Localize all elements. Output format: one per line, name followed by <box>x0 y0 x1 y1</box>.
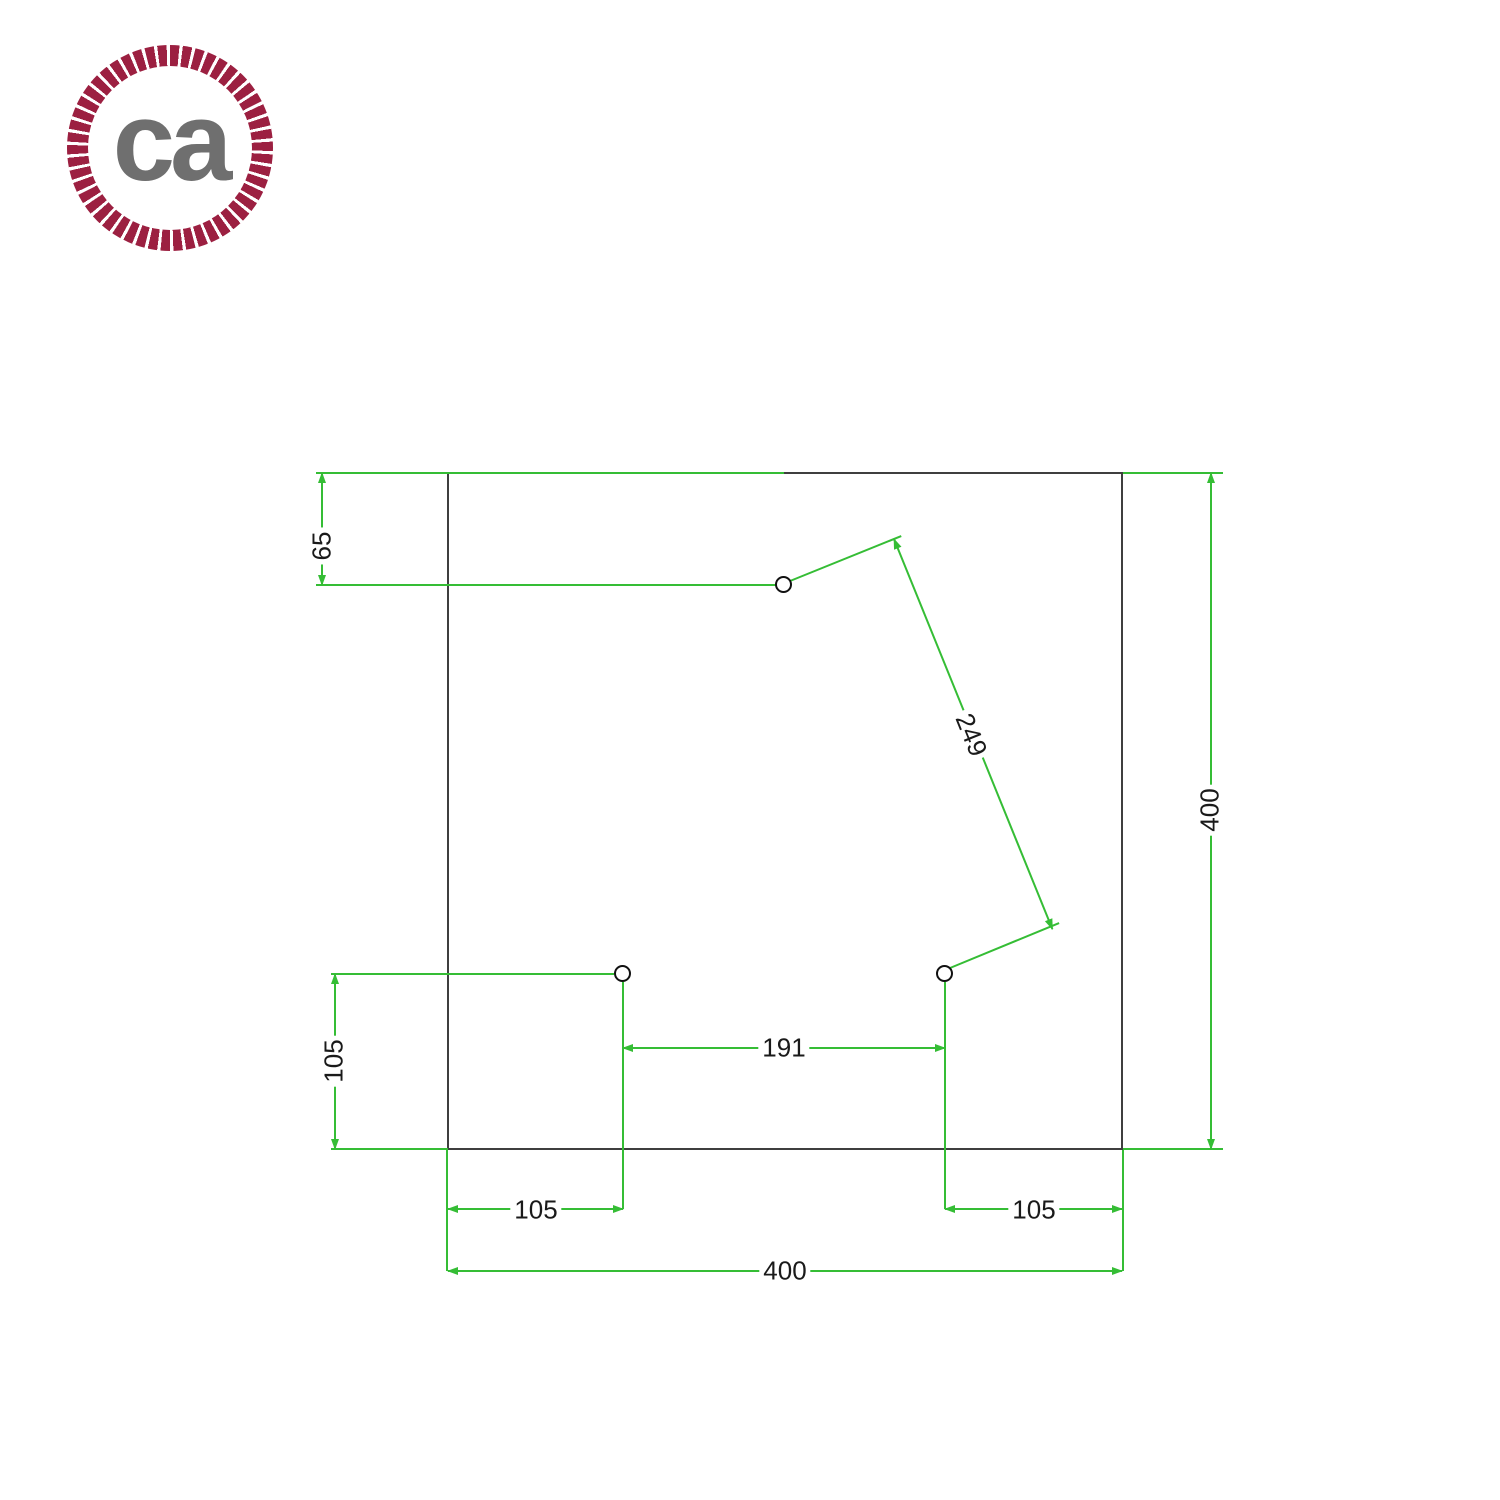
logo-text: ca <box>113 86 228 198</box>
extension-line-left-hole <box>331 973 614 975</box>
dimension-label-400-right: 400 <box>1196 784 1223 835</box>
dimension-label-105-bottom-right: 105 <box>1008 1196 1059 1223</box>
dimension-label-400-bottom: 400 <box>759 1257 810 1284</box>
diagram-canvas: ca 65 400 249 105 191 105 105 400 <box>0 0 1500 1500</box>
hole-marker-top <box>775 576 792 593</box>
dimension-label-105-left: 105 <box>320 1035 347 1086</box>
dimension-label-105-bottom-left: 105 <box>510 1196 561 1223</box>
brand-rope-ring-icon: ca <box>67 45 273 251</box>
hole-marker-bottom-right <box>936 965 953 982</box>
logo-inner-circle: ca <box>88 66 252 230</box>
extension-line-top-edge <box>316 472 784 474</box>
extension-line-bottom-left-edge <box>331 1148 448 1150</box>
extension-line-hole-right <box>944 982 946 1209</box>
extension-line-hole-left <box>622 982 624 1209</box>
hole-marker-bottom-left <box>614 965 631 982</box>
dimension-label-65: 65 <box>308 528 335 565</box>
dimension-label-191: 191 <box>758 1034 809 1061</box>
extension-line-top-hole <box>316 584 776 586</box>
